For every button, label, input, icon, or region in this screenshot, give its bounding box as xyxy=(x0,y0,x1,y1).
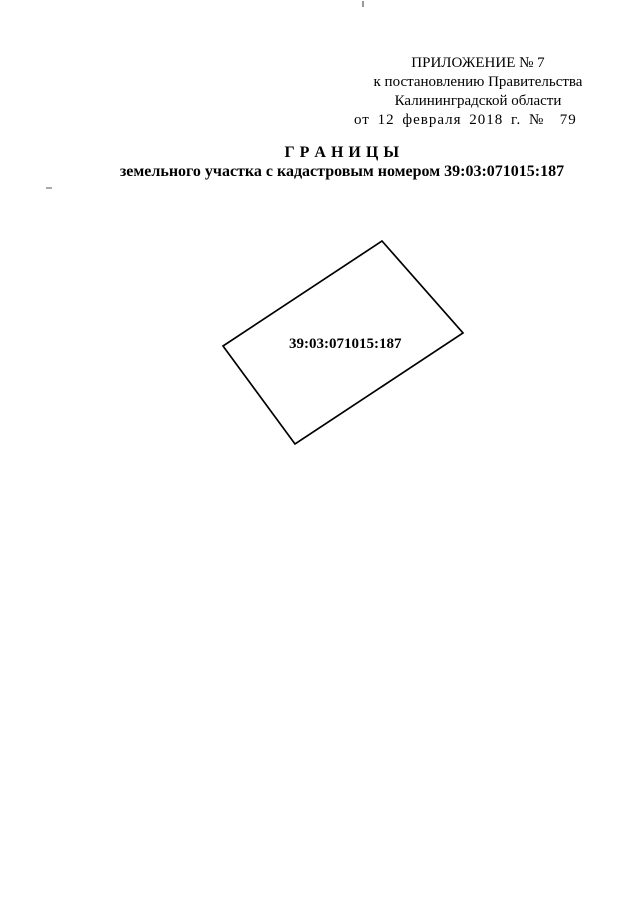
parcel-cadastral-number-label: 39:03:071015:187 xyxy=(289,336,391,353)
document-page: ПРИЛОЖЕНИЕ № 7 к постановлению Правитель… xyxy=(0,0,640,905)
parcel-boundary-diagram xyxy=(0,0,640,905)
